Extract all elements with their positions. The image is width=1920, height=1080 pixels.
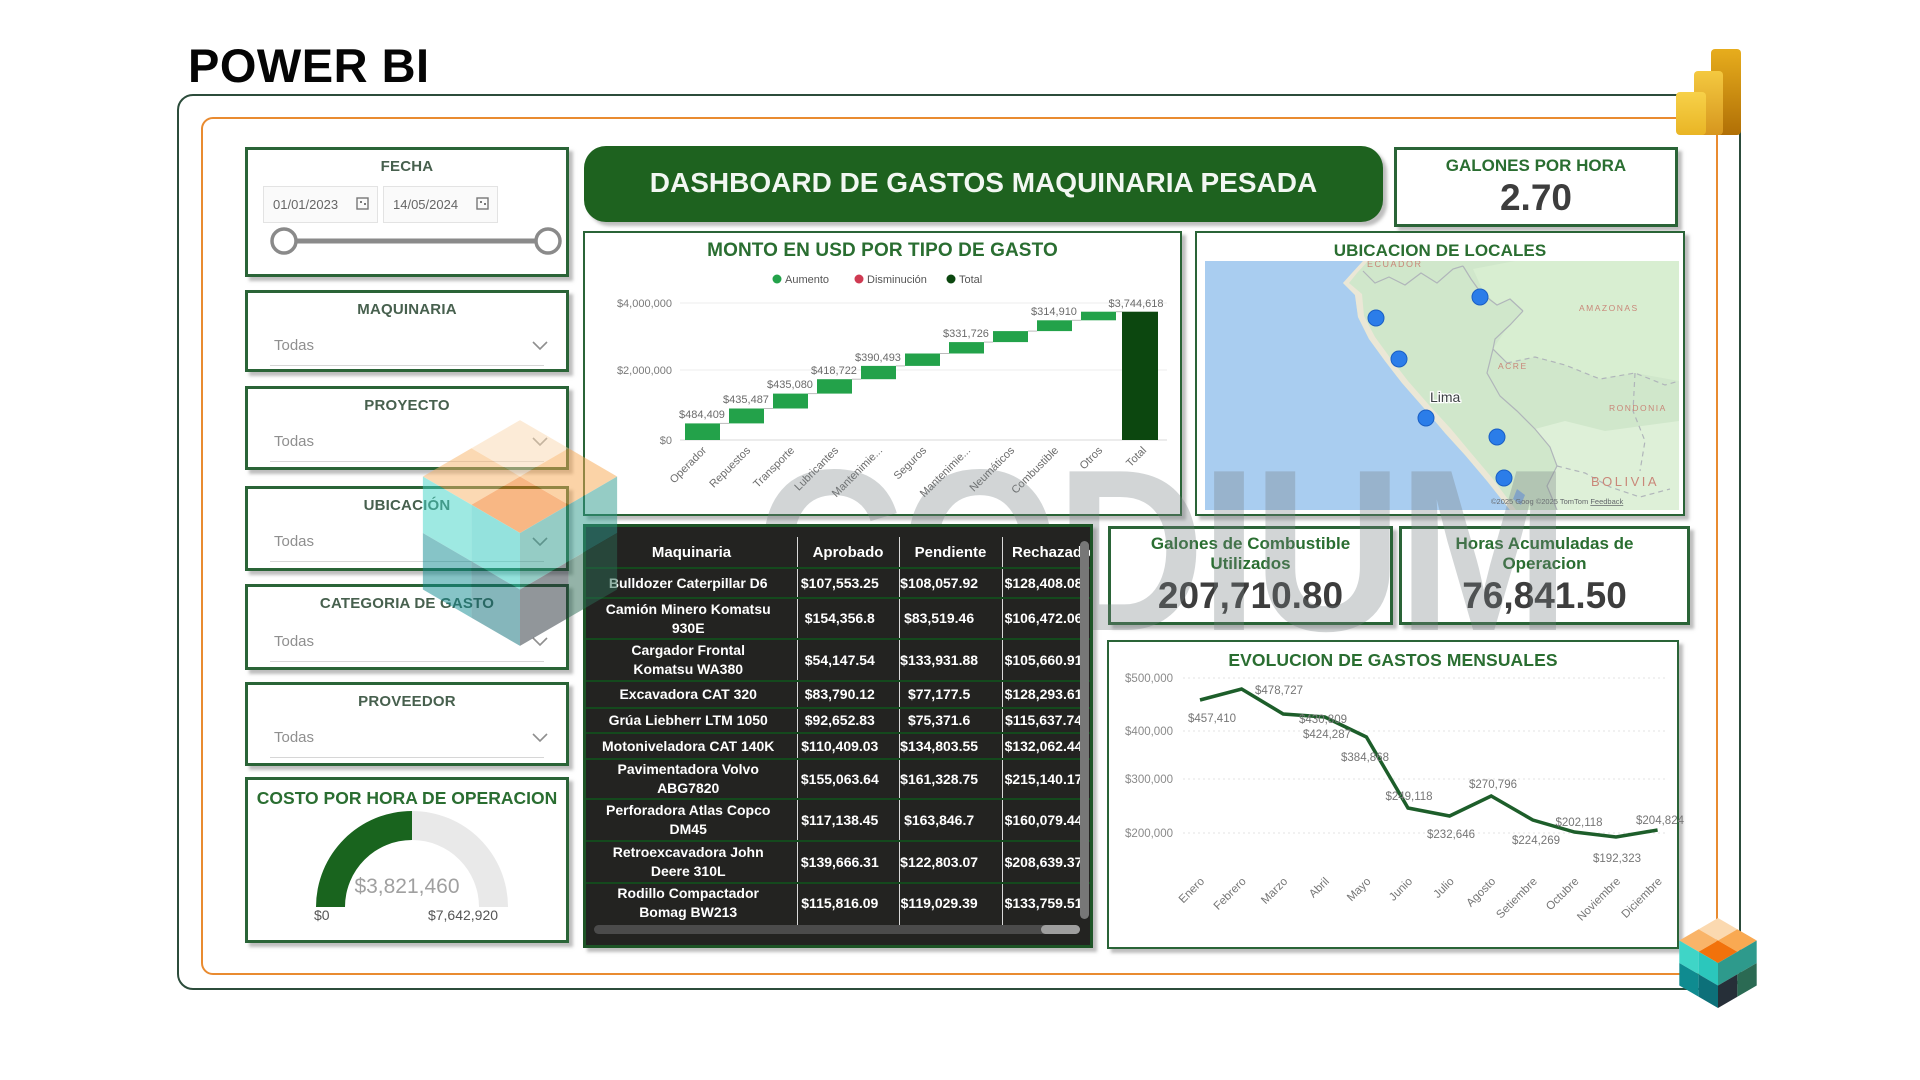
svg-text:Otros: Otros	[1078, 444, 1106, 472]
svg-text:$418,722: $418,722	[811, 365, 857, 377]
svg-text:Enero: Enero	[1177, 876, 1207, 906]
svg-text:$192,323: $192,323	[1593, 853, 1641, 865]
svg-text:$484,409: $484,409	[679, 409, 725, 421]
svg-text:Lima: Lima	[1430, 389, 1461, 405]
svg-text:$204,824: $204,824	[1636, 815, 1685, 827]
svg-text:Noviembre: Noviembre	[1575, 876, 1623, 924]
svg-text:Repuestos: Repuestos	[707, 444, 753, 490]
svg-text:Aumento: Aumento	[785, 274, 829, 286]
svg-text:ECUADOR: ECUADOR	[1367, 261, 1423, 269]
svg-text:$224,269: $224,269	[1512, 835, 1560, 847]
svg-text:$314,910: $314,910	[1031, 306, 1077, 318]
svg-text:$435,487: $435,487	[723, 394, 769, 406]
svg-text:Combustible: Combustible	[1009, 445, 1061, 497]
svg-text:RONDONIA: RONDONIA	[1609, 403, 1667, 413]
svg-text:$200,000: $200,000	[1125, 828, 1173, 840]
svg-text:Junio: Junio	[1387, 876, 1415, 904]
svg-text:Abril: Abril	[1307, 876, 1332, 901]
svg-text:$390,493: $390,493	[855, 352, 901, 364]
svg-text:Agosto: Agosto	[1465, 876, 1499, 910]
svg-text:$270,796: $270,796	[1469, 779, 1517, 791]
svg-text:Octubre: Octubre	[1544, 876, 1581, 913]
svg-text:Julio: Julio	[1432, 876, 1457, 901]
svg-text:$424,287: $424,287	[1303, 729, 1351, 741]
svg-text:AMAZONAS: AMAZONAS	[1579, 303, 1639, 313]
svg-text:$400,000: $400,000	[1125, 726, 1173, 738]
svg-text:Total: Total	[1124, 445, 1149, 470]
svg-text:$249,118: $249,118	[1385, 791, 1432, 803]
svg-text:$202,118: $202,118	[1555, 817, 1602, 829]
svg-text:Diciembre: Diciembre	[1620, 876, 1665, 921]
svg-text:Febrero: Febrero	[1212, 876, 1249, 913]
svg-text:$478,727: $478,727	[1255, 685, 1303, 697]
svg-text:BOLIVIA: BOLIVIA	[1591, 474, 1659, 489]
svg-text:Marzo: Marzo	[1259, 876, 1290, 907]
svg-text:$500,000: $500,000	[1125, 673, 1173, 685]
svg-text:Setiembre: Setiembre	[1494, 876, 1540, 922]
svg-text:$0: $0	[660, 435, 672, 447]
svg-text:$331,726: $331,726	[943, 328, 989, 340]
svg-text:$3,744,618: $3,744,618	[1108, 298, 1163, 310]
svg-text:$2,000,000: $2,000,000	[617, 365, 672, 377]
svg-text:Transporte: Transporte	[751, 445, 797, 491]
svg-text:Seguros: Seguros	[892, 444, 930, 482]
svg-text:Mayo: Mayo	[1345, 876, 1373, 904]
svg-text:$384,868: $384,868	[1341, 752, 1389, 764]
svg-text:$435,080: $435,080	[767, 379, 813, 391]
svg-text:$4,000,000: $4,000,000	[617, 298, 672, 310]
svg-text:©2025 Goog ©2025 TomTom Feed: ©2025 Goog ©2025 TomTom Feedback	[1491, 497, 1623, 506]
svg-text:$300,000: $300,000	[1125, 774, 1173, 786]
svg-text:$457,410: $457,410	[1188, 713, 1236, 725]
svg-text:ACRE: ACRE	[1498, 361, 1528, 371]
svg-text:Total: Total	[959, 274, 982, 286]
svg-text:Operador: Operador	[668, 444, 710, 486]
svg-text:$430,809: $430,809	[1299, 714, 1347, 726]
svg-text:$232,646: $232,646	[1427, 829, 1475, 841]
svg-text:Disminución: Disminución	[867, 274, 927, 286]
